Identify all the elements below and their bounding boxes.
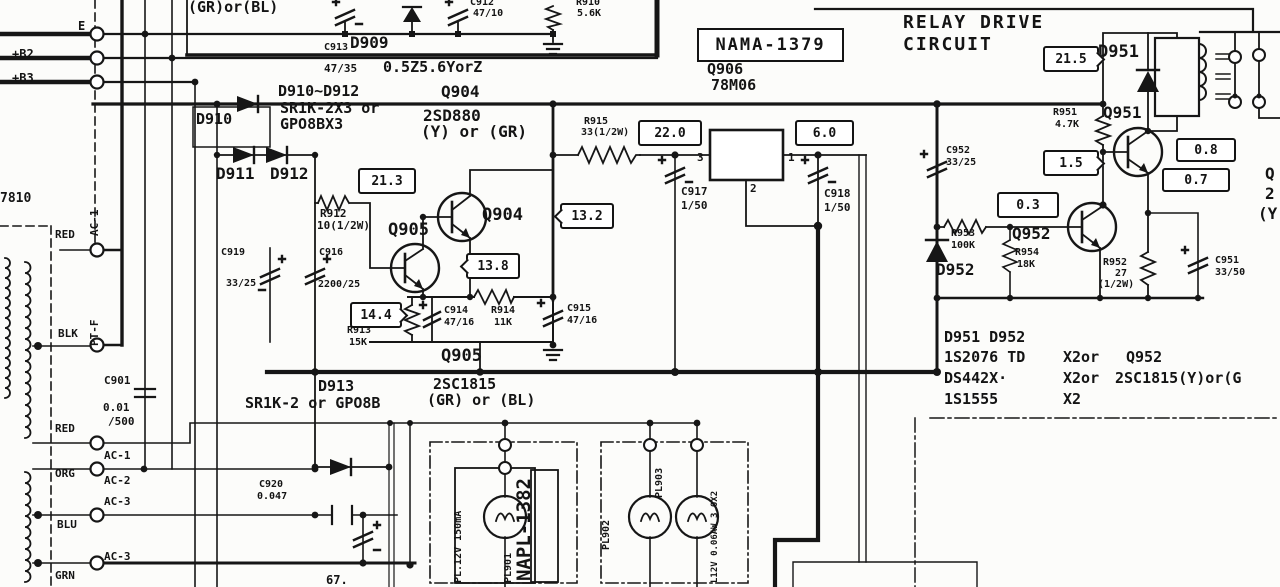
label-r912: R912 <box>320 208 347 219</box>
q904-q905-stage <box>259 104 562 467</box>
testpoint-6-0: 6.0 <box>795 120 854 146</box>
label-c952: C952 <box>946 146 970 156</box>
testpoint-14-4: 14.4 <box>350 302 402 328</box>
testpoint-0-7: 0.7 <box>1162 168 1230 192</box>
label-r910-val: 5.6K <box>577 9 601 19</box>
ground-bus <box>267 155 977 587</box>
lamp-pl902-icon <box>629 496 671 538</box>
label-grade-top: (GR)or(BL) <box>188 0 278 15</box>
label-c915: C915 <box>567 304 591 314</box>
label-c951-val: 33/50 <box>1215 268 1245 278</box>
testpoint-22-0: 22.0 <box>638 120 702 146</box>
label-d910-912: D910~D912 <box>278 84 359 99</box>
schematic-page: RELAY DRIVE CIRCUIT NAMA-1379 Q906 78M06… <box>0 0 1280 587</box>
circuit-title-line2: CIRCUIT <box>903 36 993 54</box>
board-id-box: NAMA-1379 <box>697 28 844 62</box>
rail-b2: +B2 <box>12 48 34 60</box>
testpoint-13-8: 13.8 <box>466 253 520 279</box>
label-r912-val: 10(1/2W) <box>317 220 370 231</box>
label-c916-val: 2200/25 <box>318 280 360 290</box>
label-q906: Q906 <box>707 62 743 77</box>
label-c916: C916 <box>319 248 343 258</box>
label-2sc1815-grade: (GR) or (BL) <box>427 393 535 408</box>
label-c914-val: 47/16 <box>444 318 474 328</box>
label-r914: R914 <box>491 306 515 316</box>
label-c901-val1: 0.01 <box>103 402 130 413</box>
wire-org: ORG <box>55 468 75 479</box>
label-c951: C951 <box>1215 256 1239 266</box>
parts-row4b: X2 <box>1063 392 1081 407</box>
label-c919: C919 <box>221 248 245 258</box>
label-r952-watt: (1/2W) <box>1098 280 1134 290</box>
label-c920-val: 0.047 <box>257 492 287 502</box>
testpoint-21-5: 21.5 <box>1043 46 1099 72</box>
label-c918: C918 <box>824 188 851 199</box>
label-diode-type1: SR1K-2X3 or <box>280 101 379 116</box>
testpoint-21-3: 21.3 <box>358 168 416 194</box>
ref-7810: 7810 <box>0 192 31 205</box>
wire-ac1-vert: AC-1 <box>89 210 100 237</box>
label-q905-bottom: Q905 <box>441 348 482 365</box>
label-fragment-bottom: 67. <box>326 574 348 586</box>
label-r915: R915 <box>584 117 608 127</box>
label-pl902: PL902 <box>602 520 612 550</box>
label-r951: R951 <box>1053 108 1077 118</box>
wire-red: RED <box>55 423 75 434</box>
rail-b3: +B3 <box>12 72 34 84</box>
schematic-canvas <box>0 0 1280 587</box>
label-q904-grade: (Y) or (GR) <box>421 124 527 140</box>
label-r952-val: 27 <box>1115 269 1127 279</box>
label-c917-val: 1/50 <box>681 200 708 211</box>
label-d912: D912 <box>270 166 309 182</box>
label-r954-val: 18K <box>1017 260 1035 270</box>
label-pl901-spec: PL.12V 150mA <box>454 511 464 583</box>
testpoint-1-5: 1.5 <box>1043 150 1099 176</box>
label-78m06: 78M06 <box>711 78 756 93</box>
label-c952-val: 33/25 <box>946 158 976 168</box>
label-r915-val: 33(1/2W) <box>581 128 629 138</box>
label-c912-val: 47/10 <box>473 9 503 19</box>
label-d909: D909 <box>350 35 389 51</box>
parts-row3b: X2or <box>1063 371 1099 386</box>
label-c901-val2: /500 <box>108 416 135 427</box>
label-napl-1382: NAPL-1382 <box>515 478 534 581</box>
label-pl903: PL903 <box>655 468 665 498</box>
reg-pin2: 2 <box>750 183 757 194</box>
testpoint-13-2: 13.2 <box>560 203 614 229</box>
wire-red-top: RED <box>55 229 75 240</box>
label-r914-val: 11K <box>494 318 512 328</box>
rail-e: E <box>78 20 85 32</box>
wire-ac1: AC-1 <box>104 450 131 461</box>
label-q951: Q951 <box>1103 105 1142 121</box>
ac-row-wires <box>103 250 697 563</box>
wire-ptf-vert: PT-F <box>89 320 100 347</box>
label-c919-val: 33/25 <box>226 279 256 289</box>
label-c917: C917 <box>681 186 708 197</box>
label-2sc1815: 2SC1815 <box>433 377 496 392</box>
wire-blu: BLU <box>57 519 77 530</box>
label-r953-val: 100K <box>951 241 975 251</box>
label-r953: R953 <box>951 229 975 239</box>
parts-row3c: 2SC1815(Y)or(G <box>1115 371 1241 386</box>
parts-row2b: X2or <box>1063 350 1099 365</box>
wire-grn: GRN <box>55 570 75 581</box>
label-d952: D952 <box>936 262 975 278</box>
edge-fragment-1: Q <box>1265 166 1275 182</box>
wire-ac2: AC-2 <box>104 475 131 486</box>
parts-row2a: 1S2076 TD <box>944 350 1025 365</box>
label-q904-ref: Q904 <box>441 84 480 100</box>
relay-drive-stage <box>815 9 1280 587</box>
label-c915-val: 47/16 <box>567 316 597 326</box>
label-r913-val: 15K <box>349 338 367 348</box>
parts-row3a: DS442X· <box>944 371 1007 386</box>
label-q905-top: Q905 <box>388 222 429 239</box>
label-c913-val: 47/35 <box>324 63 357 74</box>
label-q952: Q952 <box>1012 226 1051 242</box>
label-d911: D911 <box>216 166 255 182</box>
label-c918-val: 1/50 <box>824 202 851 213</box>
label-lamp-spec: L12V 0.06AW 3.0X2 <box>711 491 720 583</box>
label-d913: D913 <box>318 379 354 394</box>
circuit-title-line1: RELAY DRIVE <box>903 14 1044 32</box>
transformer-icon <box>0 226 91 587</box>
label-c920: C920 <box>259 480 283 490</box>
connector-terminals <box>91 28 104 570</box>
label-c901: C901 <box>104 375 131 386</box>
label-d910: D910 <box>196 112 232 127</box>
label-c914: C914 <box>444 306 468 316</box>
reg-pin3: 3 <box>697 152 704 163</box>
label-c912: C912 <box>470 0 494 8</box>
wire-ac3-a: AC-3 <box>104 496 131 507</box>
wire-ac3-b: AC-3 <box>104 551 131 562</box>
testpoint-0-3: 0.3 <box>997 192 1059 218</box>
label-d913-type: SR1K-2 or GPO8B <box>245 396 380 411</box>
edge-fragment-3: (Y <box>1258 206 1277 222</box>
edge-fragment-2: 2 <box>1265 186 1275 202</box>
pilot-lamp-circuit <box>430 423 748 587</box>
wire-blk: BLK <box>58 328 78 339</box>
parts-row1: D951 D952 <box>944 330 1025 345</box>
label-d909-type: 0.5Z5.6YorZ <box>383 60 482 75</box>
label-q904: Q904 <box>482 207 523 224</box>
testpoint-0-8: 0.8 <box>1176 138 1236 162</box>
label-c913: C913 <box>324 43 348 53</box>
parts-row4a: 1S1555 <box>944 392 998 407</box>
reg-pin1: 1 <box>788 152 795 163</box>
label-r910: R910 <box>576 0 600 8</box>
label-r952: R952 <box>1103 258 1127 268</box>
label-r951-val: 4.7K <box>1055 120 1079 130</box>
label-diode-type2: GPO8BX3 <box>280 117 343 132</box>
label-r954: R954 <box>1015 248 1039 258</box>
parts-row2c: Q952 <box>1126 350 1162 365</box>
